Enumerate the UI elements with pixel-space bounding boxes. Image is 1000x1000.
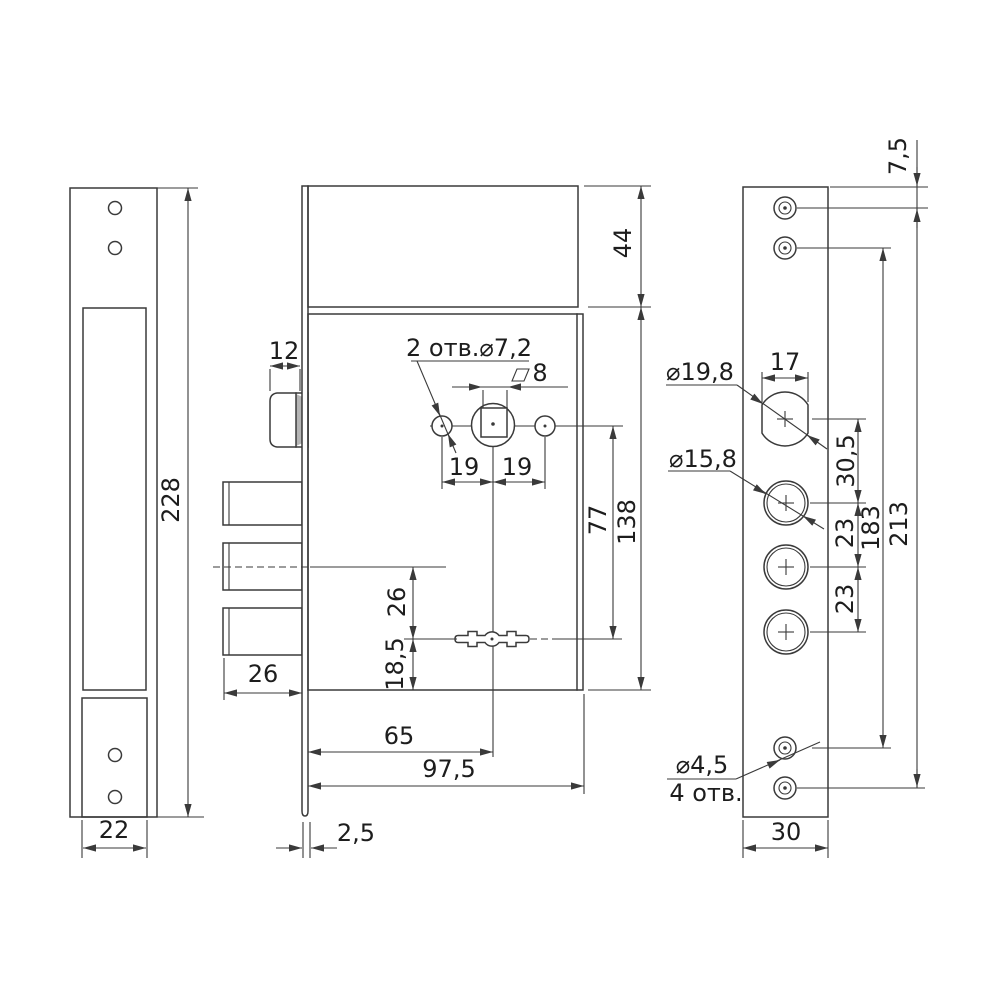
dim-axis-to-keyhole: 26 xyxy=(383,567,457,639)
lock-top-section xyxy=(308,186,578,307)
dim-hole-pitch-b: 23 xyxy=(831,567,859,632)
technical-drawing-mortise-lock: 228 22 xyxy=(0,0,1000,1000)
dim-77-label: 77 xyxy=(584,505,612,536)
square-spindle-hole xyxy=(481,408,507,437)
screw-count-label: 4 отв. xyxy=(669,779,742,807)
dim-19-right-label: 19 xyxy=(502,453,533,481)
dim-bolt-width: 26 xyxy=(224,658,302,700)
drawing-canvas: 228 22 xyxy=(0,0,1000,1000)
dim-7-5-label: 7,5 xyxy=(884,137,912,175)
dim-97-5-label: 97,5 xyxy=(422,755,475,783)
dim-228-label: 228 xyxy=(157,477,185,523)
dia-15-8-label: ⌀15,8 xyxy=(669,445,737,473)
dim-strike-width: 22 xyxy=(82,816,147,858)
dim-strike-height: 228 xyxy=(157,188,204,817)
faceplate-view: 17 ⌀19,8 ⌀15,8 30,5 23 xyxy=(666,137,928,858)
lock-body-view: 12 2 отв.⌀7,2 8 19 19 xyxy=(213,186,651,858)
dim-screw-pitch-outer: 7,5 213 xyxy=(884,137,917,788)
dim-30-label: 30 xyxy=(771,818,802,846)
dim-2-5-label: 2,5 xyxy=(337,819,375,847)
dim-213-label: 213 xyxy=(885,501,913,547)
strike-screw-hole xyxy=(109,242,122,255)
dim-backset: 65 xyxy=(308,722,493,752)
dim-23-b-label: 23 xyxy=(831,584,859,615)
dim-latch-width: 12 xyxy=(269,337,300,391)
dim-18-5-label: 18,5 xyxy=(381,637,409,690)
dim-65-label: 65 xyxy=(384,722,415,750)
dim-138-label: 138 xyxy=(613,499,641,545)
dim-spindle-to-keyhole: 77 xyxy=(584,426,613,639)
dim-26-bolt-label: 26 xyxy=(248,660,279,688)
spindle-hub xyxy=(472,404,515,447)
dim-body-width: 97,5 xyxy=(308,694,584,794)
lock-faceplate-edge xyxy=(302,186,308,816)
keyhole xyxy=(455,632,529,647)
dim-faceplate-width: 30 xyxy=(743,818,828,858)
spindle-holes-label: 2 отв.⌀7,2 xyxy=(406,334,532,362)
dim-screw-pitch-inner: 183 xyxy=(857,248,885,748)
dim-30-5-label: 30,5 xyxy=(832,434,860,487)
strike-screw-hole xyxy=(109,202,122,215)
strike-slot xyxy=(83,308,146,690)
dim-cylinder-to-hole: 30,5 xyxy=(832,419,860,503)
dim-faceplate-thickness: 2,5 xyxy=(276,819,375,858)
deadbolt xyxy=(223,608,302,655)
bolt-through-holes xyxy=(764,481,808,654)
dim-19-left-label: 19 xyxy=(449,453,480,481)
deadbolts xyxy=(223,482,302,655)
dim-44-label: 44 xyxy=(609,228,637,259)
square-symbol-icon xyxy=(512,369,529,381)
dim-22-label: 22 xyxy=(99,816,130,844)
annotation-spindle-holes: 2 отв.⌀7,2 xyxy=(406,334,532,453)
dim-12-label: 12 xyxy=(269,337,300,365)
dim-8-label: 8 xyxy=(532,359,547,387)
deadbolt xyxy=(223,482,302,525)
dim-body-height: 138 xyxy=(588,307,651,690)
dim-top-section: 44 xyxy=(584,186,651,307)
strike-screw-hole xyxy=(109,791,122,804)
dim-26-key-label: 26 xyxy=(383,587,411,618)
dia-19-8-label: ⌀19,8 xyxy=(666,358,734,386)
strike-plate-view: 228 22 xyxy=(70,188,204,858)
dim-23-a-label: 23 xyxy=(831,518,859,549)
dim-17-label: 17 xyxy=(770,348,801,376)
strike-screw-hole xyxy=(109,749,122,762)
dim-183-label: 183 xyxy=(857,505,885,551)
dia-4-5-label: ⌀4,5 xyxy=(676,751,729,779)
dim-hole-pitch-a: 23 xyxy=(831,503,859,567)
dim-keyhole-to-bottom: 18,5 xyxy=(381,637,413,690)
dim-square-spindle: 8 xyxy=(452,359,568,408)
